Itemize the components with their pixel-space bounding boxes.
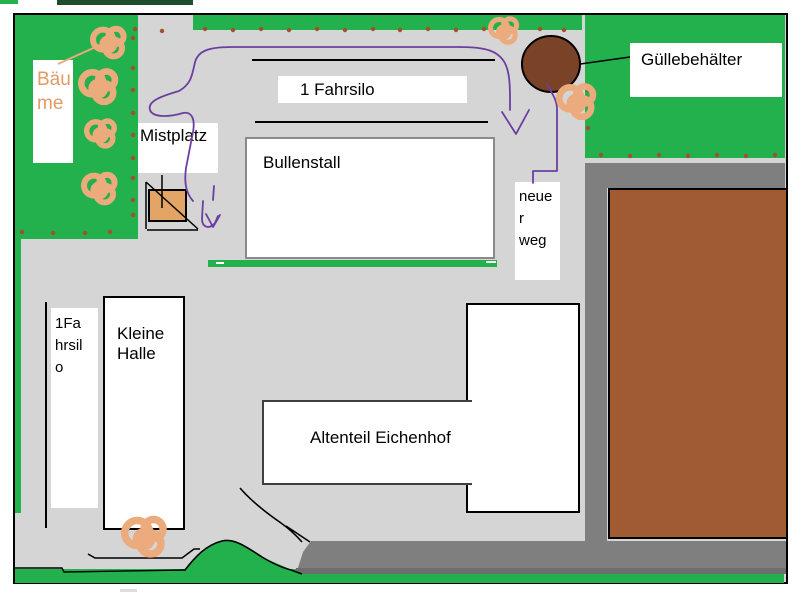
label-mistplatz: Mistplatz [138,123,218,173]
grass-strip-gap [486,261,496,263]
grass-strip-bullenstall [208,260,497,267]
site-plan-canvas: Bäu me 1 Fahrsilo Mistplatz Bullenstall … [0,0,804,603]
label-baeume: Bäu me [33,60,73,163]
grass-band-bottom-left [15,569,302,583]
grass-strip-top [193,15,582,30]
manure-square [148,189,187,222]
road-vertical [585,165,607,541]
top-edge-dark-strip [57,0,193,5]
road-horizontal [585,163,785,188]
building-altenteil-wing [466,303,580,513]
label-neuer-weg: neue r weg [515,182,560,280]
building-kleine-halle: Kleine Halle [103,296,185,530]
building-altenteil-main: Altenteil Eichenhof [262,400,472,485]
stray-mark [120,589,137,592]
building-bullenstall: Bullenstall [245,137,495,259]
label-guellebehaelter: Güllebehälter [630,43,782,97]
field-plot [608,188,786,539]
top-edge-green-strip [0,0,18,4]
grass-band-bottom-right [287,574,784,583]
grass-strip-left [15,239,21,513]
label-fahrsilo-left: 1Fa hrsil o [51,308,98,508]
label-fahrsilo-top: 1 Fahrsilo [278,76,467,103]
grass-strip-gap [216,262,224,264]
